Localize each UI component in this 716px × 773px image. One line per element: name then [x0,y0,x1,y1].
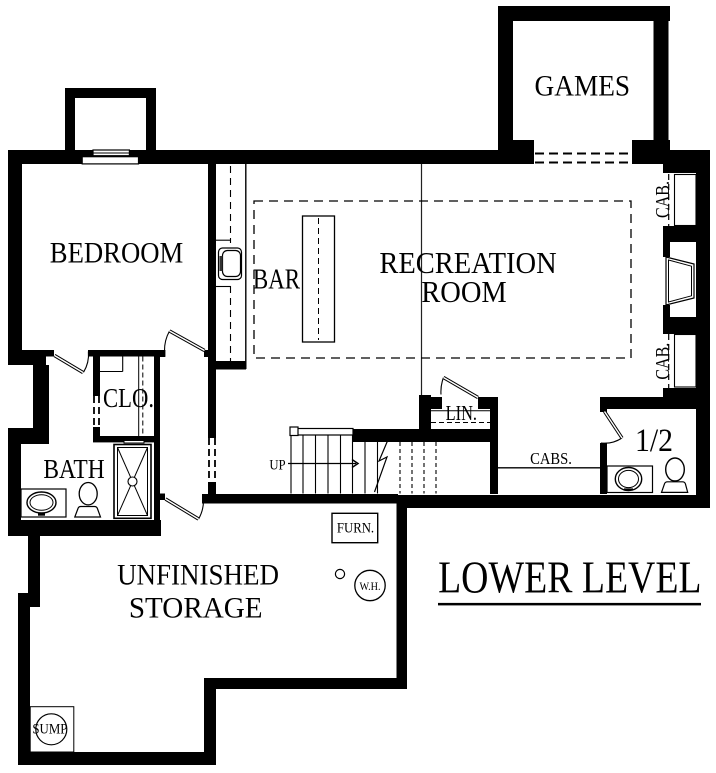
svg-text:GAMES: GAMES [535,70,631,103]
svg-text:SUMP: SUMP [32,722,67,738]
svg-text:1/2: 1/2 [635,422,673,459]
svg-text:UP: UP [269,458,286,474]
svg-text:UNFINISHED: UNFINISHED [117,559,279,592]
svg-text:STORAGE: STORAGE [129,592,263,624]
svg-text:W.H.: W.H. [359,580,380,593]
svg-text:CAB.: CAB. [651,343,673,380]
svg-text:LIN.: LIN. [446,402,477,425]
svg-text:CABS.: CABS. [530,450,572,468]
svg-text:BATH: BATH [43,455,104,485]
svg-text:ROOM: ROOM [421,275,507,309]
svg-text:BEDROOM: BEDROOM [50,237,183,270]
svg-text:CLO.: CLO. [103,384,154,413]
svg-text:CAB.: CAB. [651,181,673,218]
svg-text:FURN.: FURN. [337,521,374,537]
svg-text:LOWER LEVEL: LOWER LEVEL [438,552,701,602]
svg-text:BAR: BAR [253,263,301,295]
